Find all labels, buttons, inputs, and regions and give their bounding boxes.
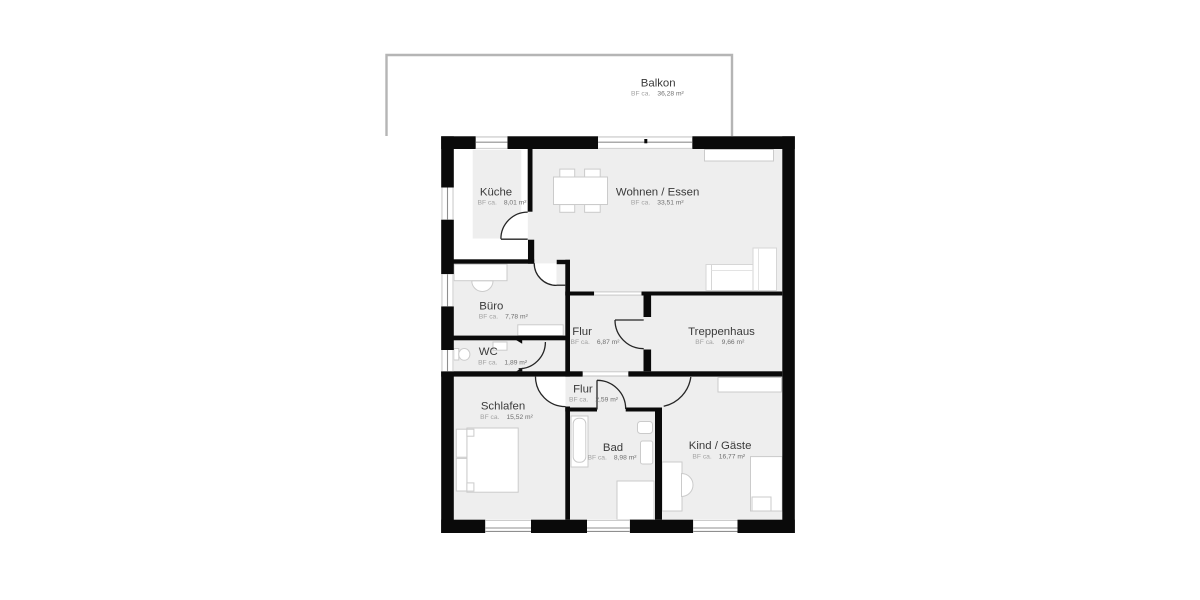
- svg-text:Flur: Flur: [572, 326, 592, 338]
- svg-text:Schlafen: Schlafen: [481, 401, 525, 413]
- svg-text:BF ca.15,52 m²: BF ca.15,52 m²: [480, 414, 533, 421]
- svg-text:BF ca.33,51 m²: BF ca.33,51 m²: [631, 200, 684, 207]
- svg-text:Flur: Flur: [573, 383, 593, 395]
- svg-text:Wohnen / Essen: Wohnen / Essen: [616, 186, 699, 198]
- svg-text:Küche: Küche: [480, 187, 512, 199]
- svg-text:BF ca.16,77 m²: BF ca.16,77 m²: [692, 453, 745, 460]
- svg-text:Kind / Gäste: Kind / Gäste: [689, 440, 752, 452]
- svg-text:Büro: Büro: [479, 300, 503, 312]
- svg-text:Treppenhaus: Treppenhaus: [688, 326, 755, 338]
- svg-text:Balkon: Balkon: [641, 78, 676, 90]
- svg-text:Bad: Bad: [603, 442, 623, 454]
- svg-text:WC: WC: [479, 346, 498, 358]
- svg-text:BF ca.36,28 m²: BF ca.36,28 m²: [631, 91, 684, 98]
